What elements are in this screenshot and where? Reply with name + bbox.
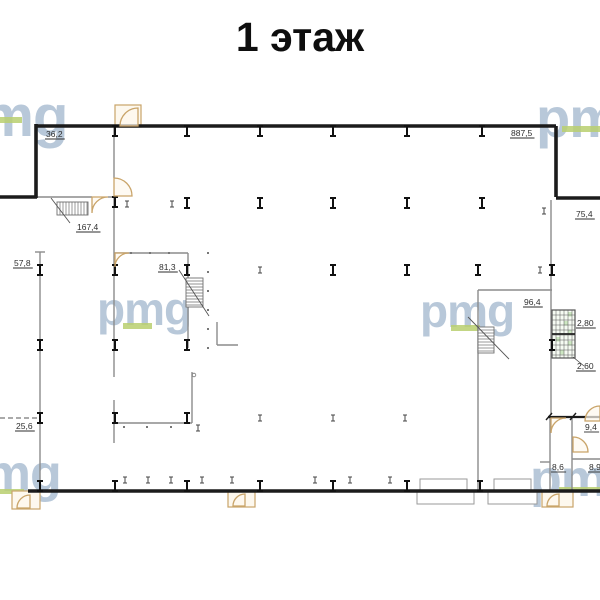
column-marker: [258, 267, 262, 273]
area-label: 36,2: [46, 129, 63, 139]
stairs-break-line: [179, 270, 209, 316]
column-marker: [37, 265, 43, 275]
grid-dot: [207, 328, 209, 330]
door-arc: [114, 178, 132, 196]
area-label: 25,6: [16, 421, 33, 431]
area-label: 2,60: [577, 361, 594, 371]
column-marker: [538, 267, 542, 273]
door-arc: [573, 437, 588, 452]
column-marker: [200, 477, 204, 483]
grid-ring: [192, 373, 196, 377]
area-label: 8,6: [552, 462, 564, 472]
column-marker: [313, 477, 317, 483]
column-marker: [330, 265, 336, 275]
column-marker: [404, 265, 410, 275]
stairs-outline: [57, 202, 88, 215]
grid-dot: [146, 426, 148, 428]
column-marker: [170, 201, 174, 207]
area-label: 887,5: [511, 128, 533, 138]
column-marker: [123, 477, 127, 483]
column-marker: [542, 208, 546, 214]
column-marker: [169, 477, 173, 483]
door-arc: [92, 197, 108, 213]
column-marker: [404, 198, 410, 208]
grid-dot: [207, 252, 209, 254]
grid-dot: [170, 426, 172, 428]
floor-plan: 36,2887,5167,457,881,396,425,675,42,802,…: [0, 0, 600, 600]
window-rect: [417, 492, 474, 504]
shaft-green-cell: [560, 350, 564, 355]
column-marker: [479, 198, 485, 208]
grid-dot: [207, 347, 209, 349]
column-marker: [184, 198, 190, 208]
column-marker: [258, 415, 262, 421]
column-marker: [196, 425, 200, 431]
page-title: 1 этаж: [0, 14, 600, 61]
area-label: 8,9: [589, 462, 600, 472]
column-marker: [257, 198, 263, 208]
shaft-green-cell: [568, 312, 572, 317]
window-rect: [488, 492, 537, 504]
shaft-green-cell: [556, 337, 560, 342]
area-label: 2,80: [577, 318, 594, 328]
column-marker: [403, 415, 407, 421]
column-marker: [184, 265, 190, 275]
column-marker: [549, 265, 555, 275]
grid-dot: [149, 252, 151, 254]
grid-dot: [207, 271, 209, 273]
column-marker: [112, 340, 118, 350]
door-arc: [551, 418, 566, 433]
column-marker: [125, 201, 129, 207]
door-arc: [585, 406, 600, 421]
column-marker: [475, 265, 481, 275]
grid-dot: [130, 252, 132, 254]
grid-dot: [207, 309, 209, 311]
column-marker: [331, 415, 335, 421]
column-marker: [330, 198, 336, 208]
area-label: 167,4: [77, 222, 99, 232]
area-label: 57,8: [14, 258, 31, 268]
grid-dot: [168, 252, 170, 254]
column-marker: [348, 477, 352, 483]
column-marker: [230, 477, 234, 483]
area-label: 75,4: [576, 209, 593, 219]
column-marker: [184, 340, 190, 350]
column-marker: [184, 413, 190, 423]
grid-dot: [207, 290, 209, 292]
area-label: 9,4: [585, 422, 597, 432]
column-marker: [112, 197, 118, 207]
column-marker: [37, 413, 43, 423]
stairs-outline: [478, 327, 494, 353]
area-label: 81,3: [159, 262, 176, 272]
grid-dot: [123, 426, 125, 428]
column-marker: [388, 477, 392, 483]
area-label: 96,4: [524, 297, 541, 307]
column-marker: [112, 413, 118, 423]
column-marker: [146, 477, 150, 483]
column-marker: [37, 340, 43, 350]
